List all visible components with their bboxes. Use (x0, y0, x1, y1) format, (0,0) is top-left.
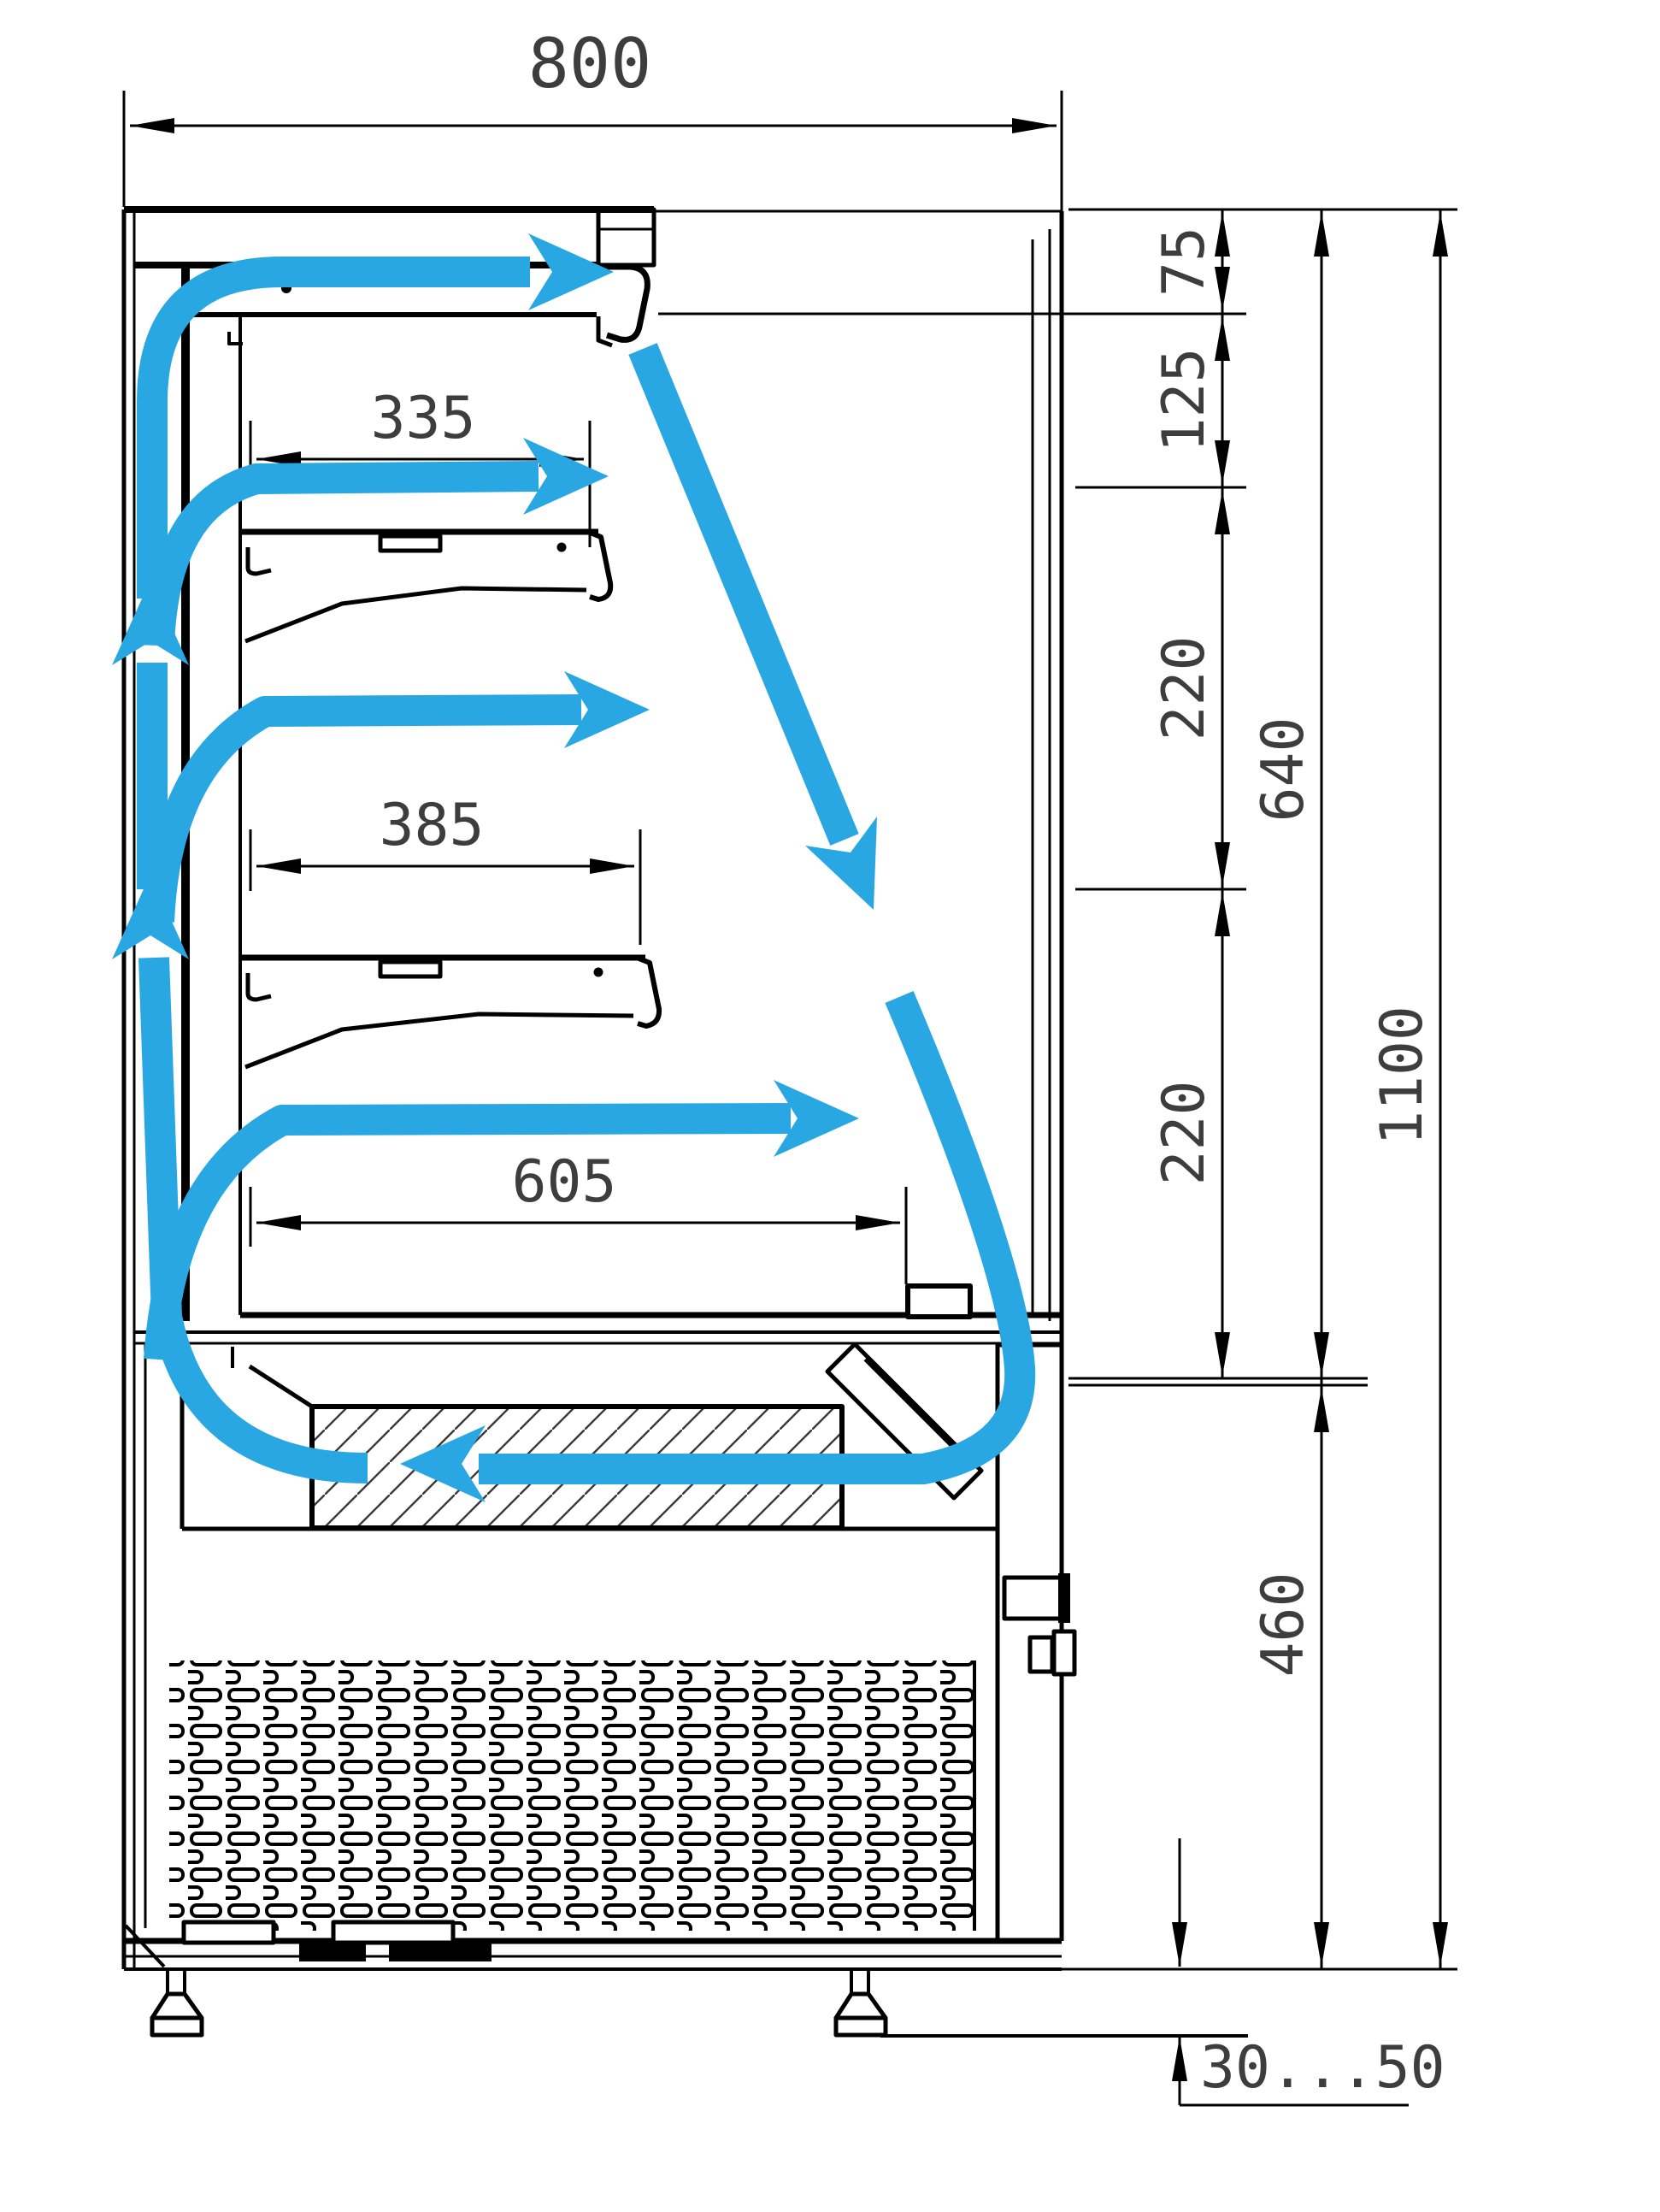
label-display-opening-height: 640 (1250, 717, 1317, 823)
airflow-arrow-canopy-icon (528, 233, 614, 310)
ventilation-grille (169, 1660, 974, 1931)
label-shelf1-to-shelf2: 220 (1151, 636, 1218, 741)
label-shelf1-depth: 335 (371, 385, 476, 452)
airflow-shelf2-arm (159, 710, 581, 922)
airflow-curtain-jet (643, 349, 845, 840)
label-shelf2-depth: 385 (380, 792, 485, 859)
display-case-drawing: 800 335 385 605 75 125 220 220 640 1100 … (0, 0, 1660, 2212)
label-base-height: 460 (1250, 1572, 1317, 1678)
door-latch (1030, 1631, 1074, 1674)
airflow-shelf1-arm (159, 476, 539, 646)
label-overall-depth: 800 (528, 24, 652, 103)
door-handle (1004, 1573, 1070, 1623)
shelf-2 (240, 958, 659, 1067)
label-overall-height: 1100 (1369, 1006, 1436, 1146)
shelf-1 (240, 532, 610, 641)
air-outlet-nozzle (598, 209, 654, 345)
foot-left (152, 1969, 202, 2035)
label-outlet-to-shelf1: 125 (1151, 348, 1218, 453)
airflow-circuit (112, 233, 1020, 1502)
label-deck-depth: 605 (512, 1148, 617, 1216)
label-shelf2-to-deck: 220 (1151, 1081, 1218, 1186)
airflow-deck-arm (159, 1118, 791, 1360)
airflow-return-curve (479, 997, 1020, 1469)
front-glass (1033, 211, 1062, 1321)
dim-640-460-line (1314, 209, 1329, 1969)
label-foot-clearance: 30...50 (1200, 2034, 1445, 2102)
machine-compartment (169, 1321, 1074, 1941)
display-deck (134, 1286, 1062, 1343)
return-air-block (908, 1286, 970, 1317)
label-canopy-outlet-height: 75 (1151, 227, 1218, 297)
foot-right (836, 1969, 886, 2035)
